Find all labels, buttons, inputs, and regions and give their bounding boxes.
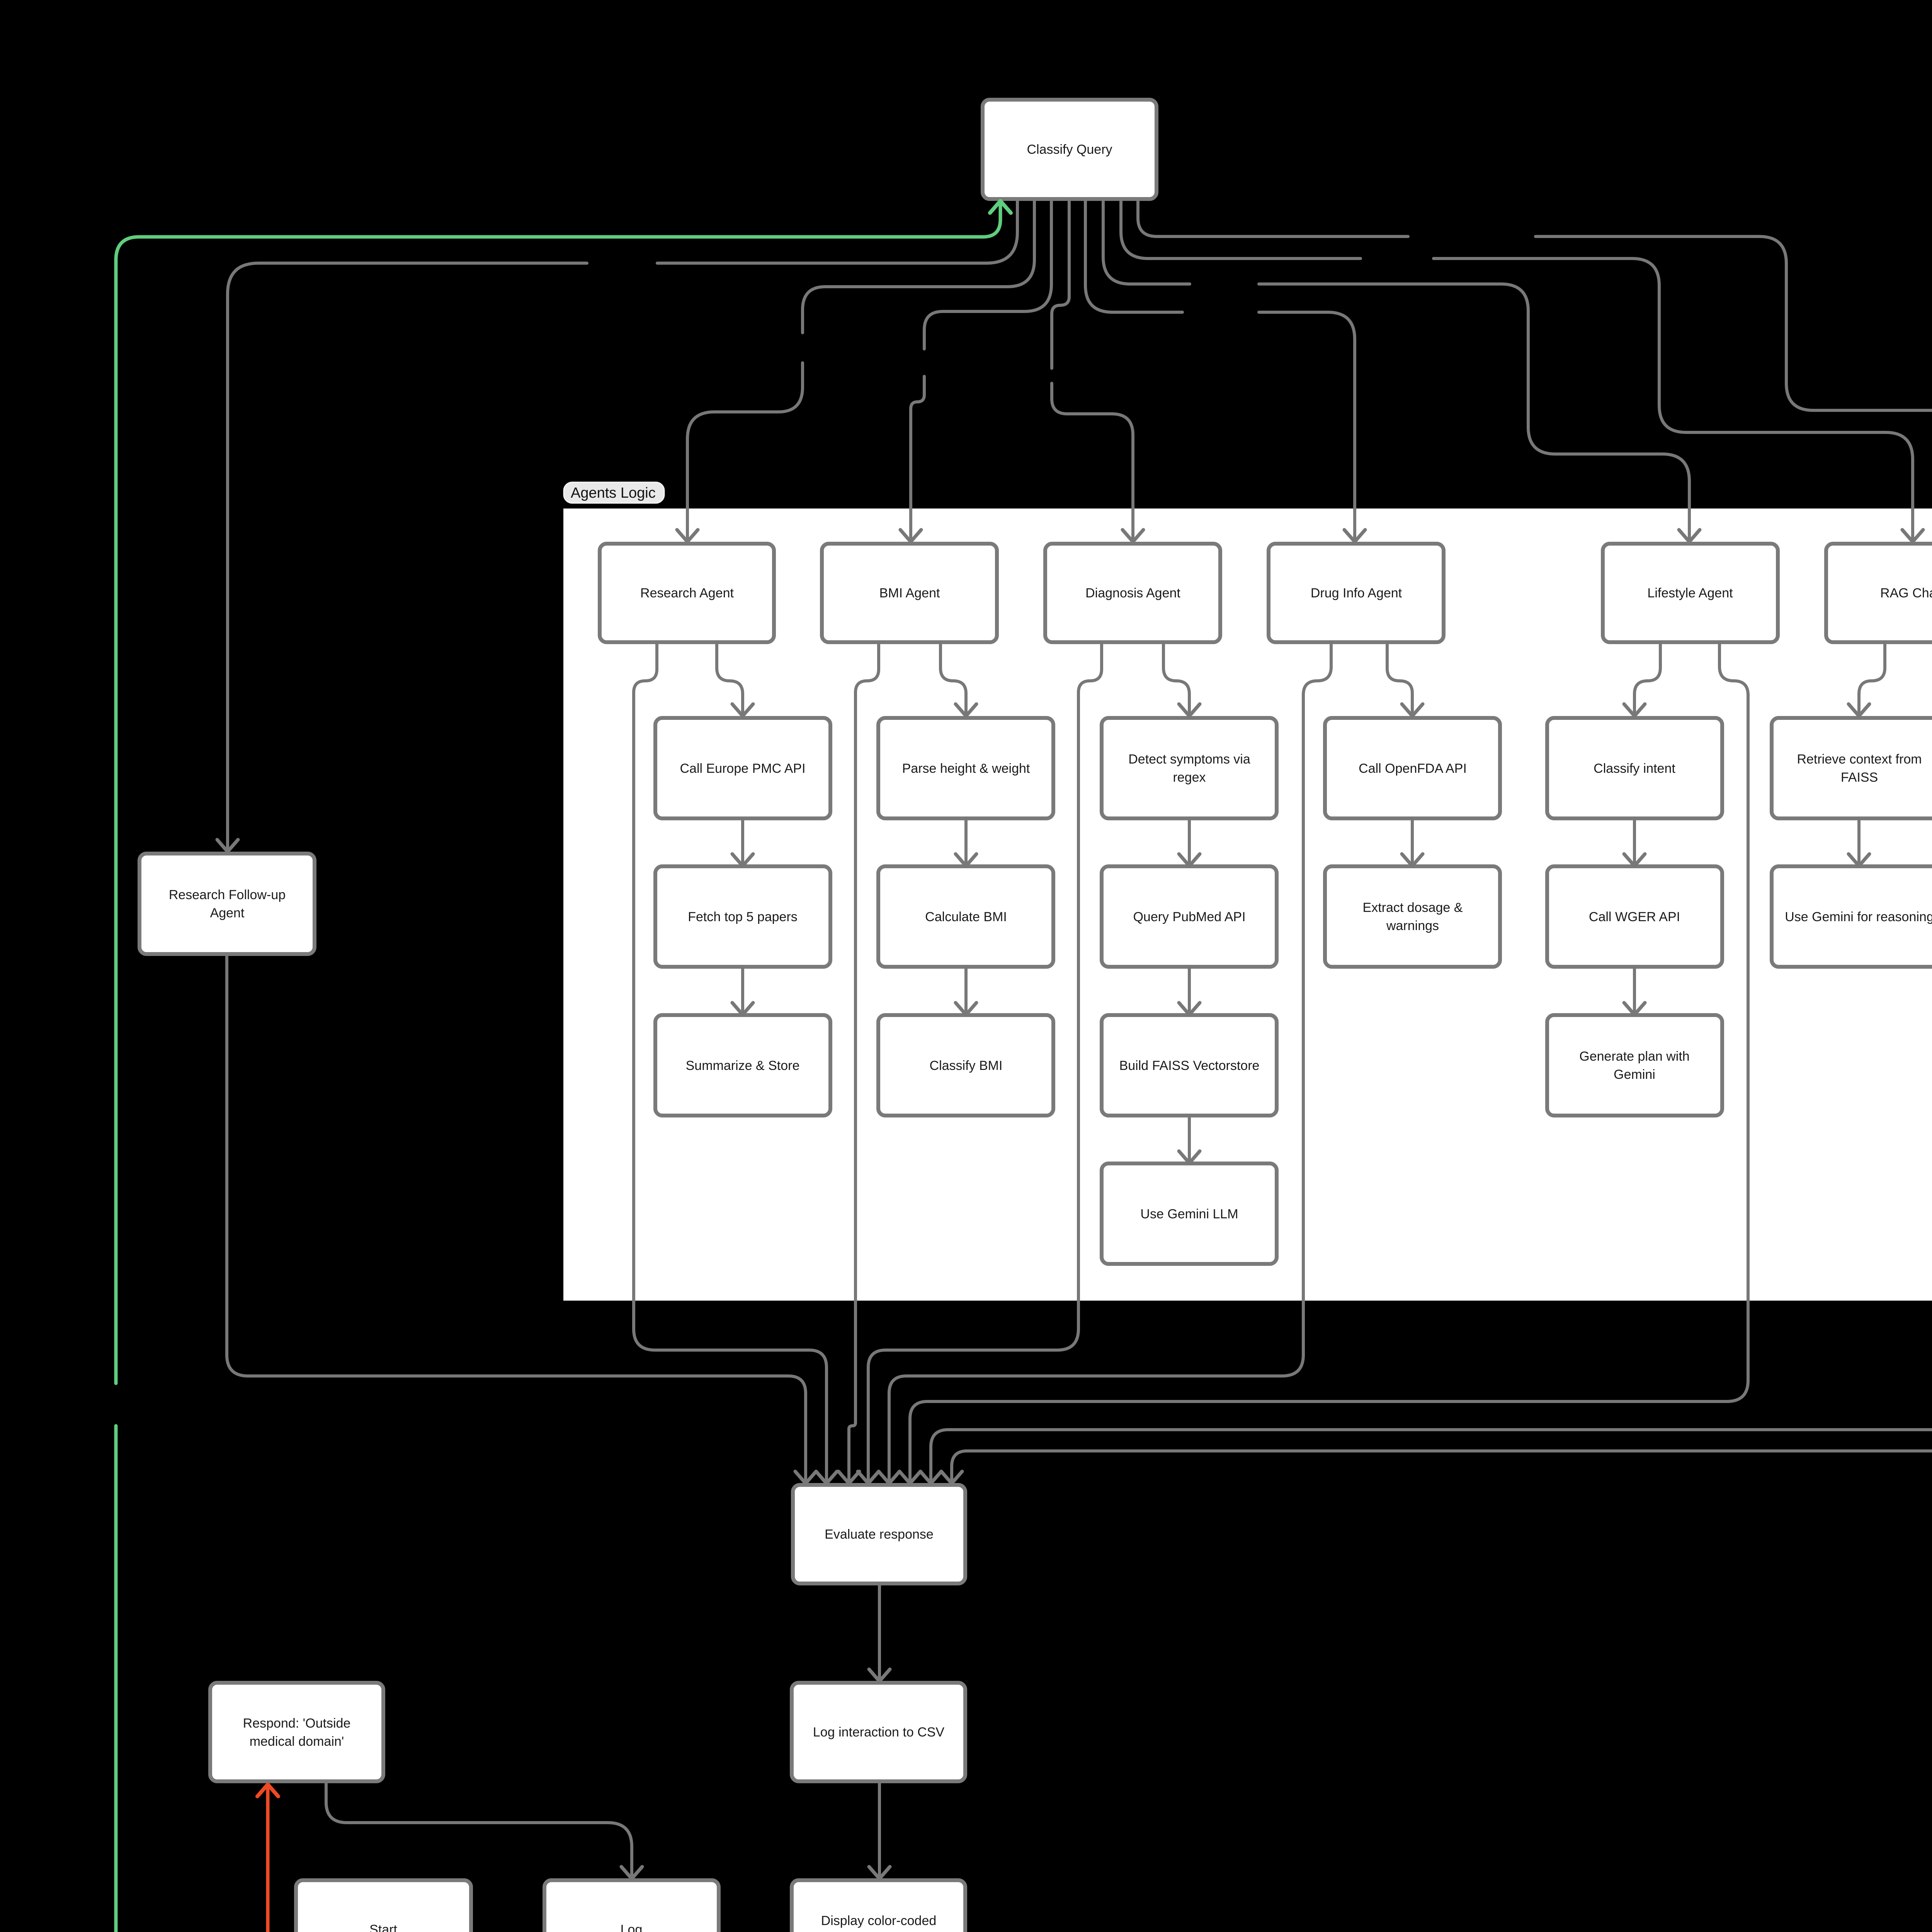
svg-text:FAISS: FAISS <box>1841 770 1878 785</box>
svg-text:Evaluate response: Evaluate response <box>825 1527 934 1542</box>
svg-text:Diagnosis Agent: Diagnosis Agent <box>1085 586 1180 600</box>
svg-text:Extract dosage &: Extract dosage & <box>1363 900 1463 915</box>
svg-text:Call WGER API: Call WGER API <box>1589 910 1680 924</box>
svg-text:Use Gemini LLM: Use Gemini LLM <box>1140 1207 1238 1221</box>
svg-text:Call Europe PMC API: Call Europe PMC API <box>680 761 805 776</box>
svg-text:Call OpenFDA API: Call OpenFDA API <box>1359 761 1467 776</box>
svg-text:Log interaction to CSV: Log interaction to CSV <box>813 1725 945 1740</box>
svg-text:Start: Start <box>369 1922 397 1932</box>
svg-text:Classify Query: Classify Query <box>1027 142 1112 157</box>
svg-text:Display color-coded: Display color-coded <box>821 1913 937 1928</box>
svg-text:Lifestyle Agent: Lifestyle Agent <box>1647 586 1733 600</box>
svg-text:Classify intent: Classify intent <box>1594 761 1675 776</box>
svg-text:Agent: Agent <box>210 906 245 920</box>
svg-text:Research Follow-up: Research Follow-up <box>169 888 286 902</box>
svg-text:Agents Logic: Agents Logic <box>571 485 656 501</box>
svg-text:Log: Log <box>621 1922 643 1932</box>
svg-text:Query PubMed API: Query PubMed API <box>1133 910 1245 924</box>
svg-text:Generate plan with: Generate plan with <box>1579 1049 1689 1064</box>
svg-text:Fetch top 5 papers: Fetch top 5 papers <box>688 910 798 924</box>
svg-text:Detect symptoms via: Detect symptoms via <box>1128 752 1250 767</box>
svg-text:Classify BMI: Classify BMI <box>930 1058 1003 1073</box>
svg-text:Respond: 'Outside: Respond: 'Outside <box>243 1716 351 1731</box>
svg-text:BMI Agent: BMI Agent <box>879 586 940 600</box>
svg-text:medical domain': medical domain' <box>250 1734 344 1749</box>
svg-text:RAG Chain: RAG Chain <box>1880 586 1932 600</box>
svg-text:Summarize & Store: Summarize & Store <box>686 1058 800 1073</box>
svg-text:Parse height & weight: Parse height & weight <box>902 761 1030 776</box>
svg-text:Retrieve context from: Retrieve context from <box>1797 752 1922 767</box>
svg-text:Research Agent: Research Agent <box>640 586 734 600</box>
svg-text:Gemini: Gemini <box>1614 1067 1655 1082</box>
svg-text:warnings: warnings <box>1386 918 1439 933</box>
svg-text:Build FAISS Vectorstore: Build FAISS Vectorstore <box>1119 1058 1260 1073</box>
svg-text:regex: regex <box>1173 770 1206 785</box>
svg-text:Calculate BMI: Calculate BMI <box>925 910 1007 924</box>
svg-text:Drug Info Agent: Drug Info Agent <box>1311 586 1402 600</box>
svg-text:Use Gemini for reasoning: Use Gemini for reasoning <box>1785 910 1932 924</box>
